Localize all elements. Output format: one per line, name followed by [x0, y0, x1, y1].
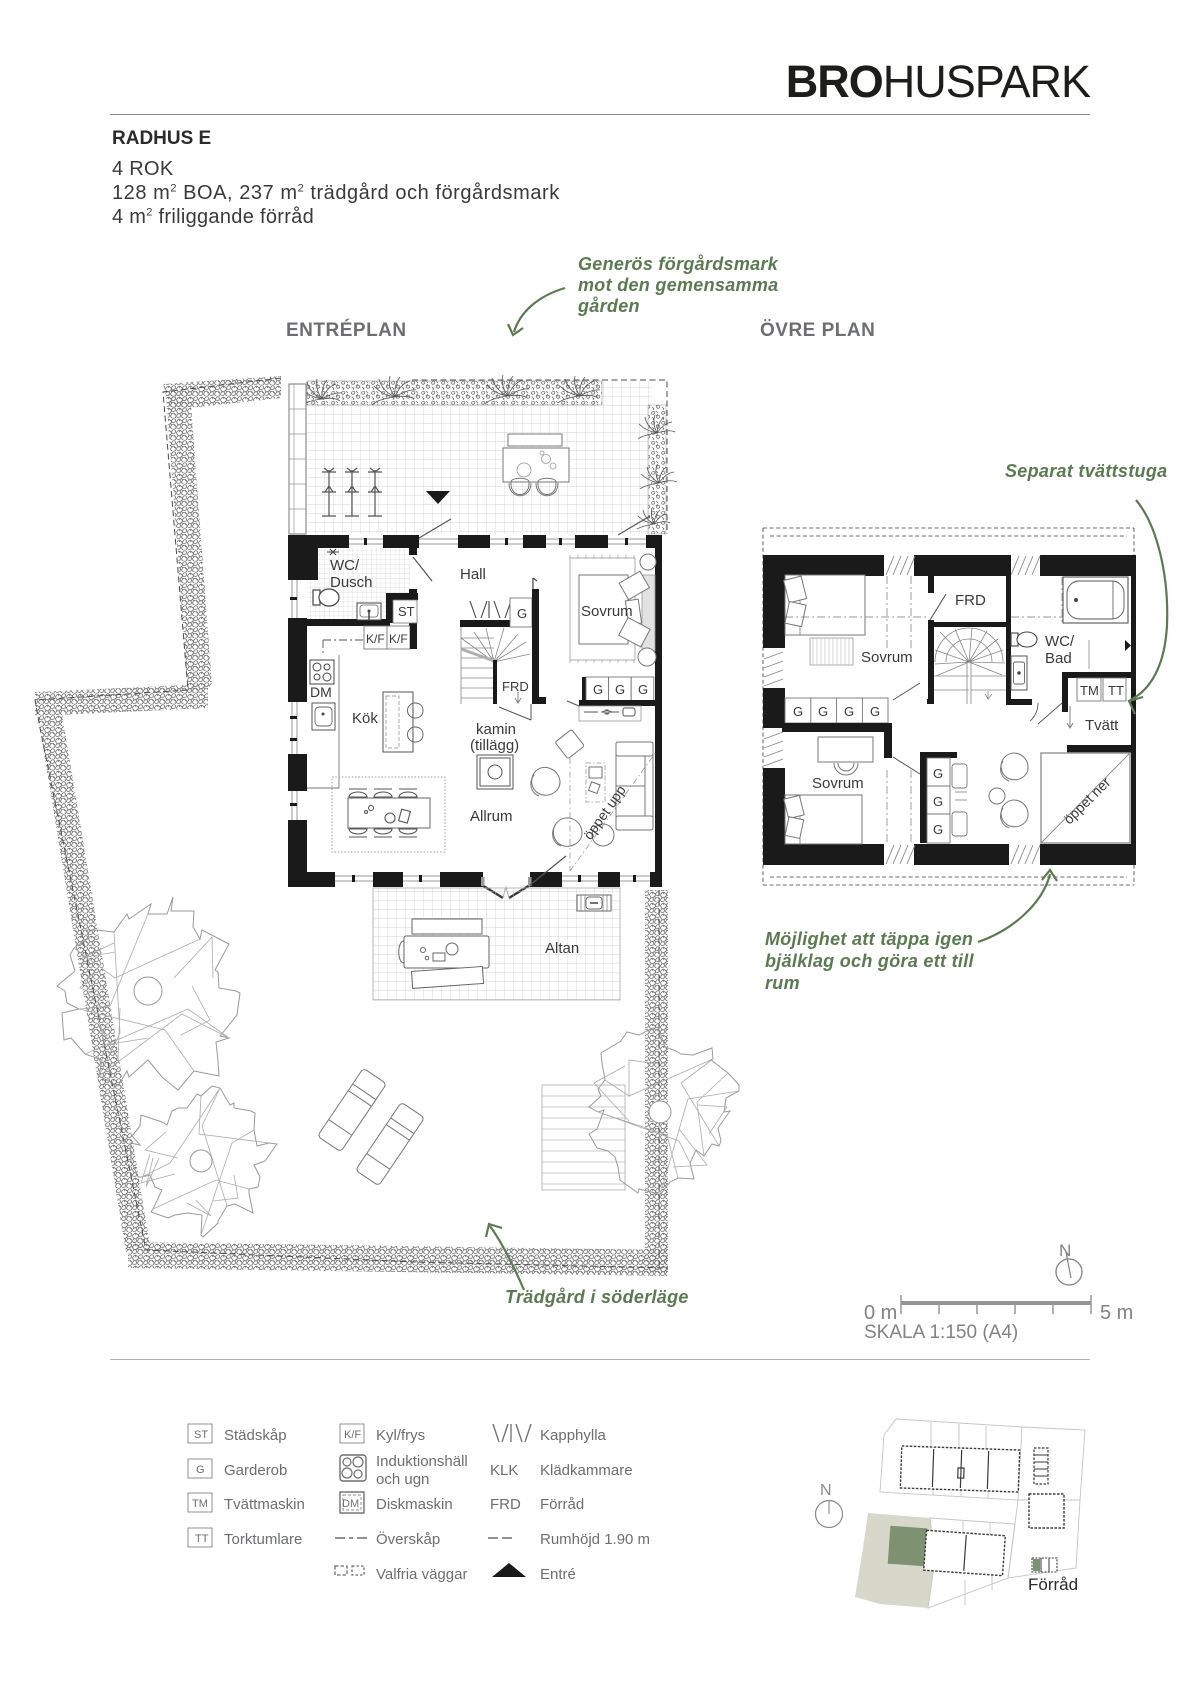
svg-text:WC/: WC/: [330, 557, 360, 574]
svg-text:FRD: FRD: [955, 592, 986, 609]
svg-text:Entré: Entré: [540, 1566, 576, 1583]
svg-text:G: G: [638, 682, 648, 697]
svg-text:kamin: kamin: [476, 721, 516, 738]
svg-text:Valfria väggar: Valfria väggar: [376, 1566, 467, 1583]
svg-text:DM: DM: [310, 684, 332, 700]
svg-text:K/F: K/F: [389, 632, 408, 646]
svg-text:Kapphylla: Kapphylla: [540, 1427, 607, 1444]
svg-text:G: G: [818, 704, 828, 719]
svg-text:FRD: FRD: [490, 1496, 521, 1513]
svg-text:WC/: WC/: [1045, 633, 1075, 650]
svg-text:G: G: [870, 704, 880, 719]
svg-text:G: G: [593, 682, 603, 697]
svg-text:0 m: 0 m: [864, 1302, 897, 1324]
svg-text:Förråd: Förråd: [540, 1496, 584, 1513]
svg-text:Dusch: Dusch: [330, 574, 373, 591]
svg-text:Sovrum: Sovrum: [581, 603, 633, 620]
svg-text:K/F: K/F: [366, 632, 385, 646]
svg-text:G: G: [933, 822, 943, 837]
svg-text:N: N: [820, 1482, 832, 1499]
svg-text:Garderob: Garderob: [224, 1462, 287, 1479]
svg-text:G: G: [615, 682, 625, 697]
svg-text:KLK: KLK: [490, 1462, 518, 1479]
svg-text:TM: TM: [192, 1498, 208, 1510]
svg-text:Klädkammare: Klädkammare: [540, 1462, 633, 1479]
svg-text:Sovrum: Sovrum: [861, 649, 913, 666]
svg-text:ST: ST: [194, 1429, 208, 1441]
svg-text:Rumhöjd 1.90 m: Rumhöjd 1.90 m: [540, 1531, 650, 1548]
svg-text:FRD: FRD: [502, 679, 529, 694]
svg-text:Hall: Hall: [460, 566, 486, 583]
svg-text:G: G: [793, 704, 803, 719]
svg-text:Diskmaskin: Diskmaskin: [376, 1496, 453, 1513]
svg-text:Allrum: Allrum: [470, 808, 513, 825]
svg-text:K/F: K/F: [344, 1429, 361, 1441]
svg-text:Induktionshäll: Induktionshäll: [376, 1453, 468, 1470]
svg-text:Kyl/frys: Kyl/frys: [376, 1427, 425, 1444]
svg-text:(tillägg): (tillägg): [470, 737, 519, 754]
svg-text:Städskåp: Städskåp: [224, 1427, 287, 1444]
svg-text:TT: TT: [1108, 683, 1124, 698]
svg-text:TM: TM: [1080, 683, 1099, 698]
svg-text:N: N: [1059, 1241, 1071, 1260]
svg-text:G: G: [933, 794, 943, 809]
svg-text:Tvätt: Tvätt: [1085, 717, 1119, 734]
svg-text:G: G: [933, 766, 943, 781]
svg-text:Förråd: Förråd: [1028, 1575, 1078, 1594]
svg-text:Överskåp: Överskåp: [376, 1530, 440, 1548]
svg-text:ST: ST: [398, 604, 415, 619]
svg-text:Torktumlare: Torktumlare: [224, 1531, 302, 1548]
svg-text:Altan: Altan: [545, 940, 579, 957]
svg-text:5 m: 5 m: [1100, 1302, 1133, 1324]
svg-text:Tvättmaskin: Tvättmaskin: [224, 1496, 305, 1513]
svg-text:G: G: [517, 606, 527, 621]
svg-text:Sovrum: Sovrum: [812, 775, 864, 792]
svg-text:Bad: Bad: [1045, 650, 1072, 667]
svg-text:G: G: [196, 1464, 205, 1476]
svg-text:Kök: Kök: [352, 710, 378, 727]
svg-text:och ugn: och ugn: [376, 1471, 429, 1488]
svg-text:DM: DM: [342, 1498, 359, 1510]
svg-text:TT: TT: [195, 1533, 209, 1545]
svg-text:G: G: [844, 704, 854, 719]
